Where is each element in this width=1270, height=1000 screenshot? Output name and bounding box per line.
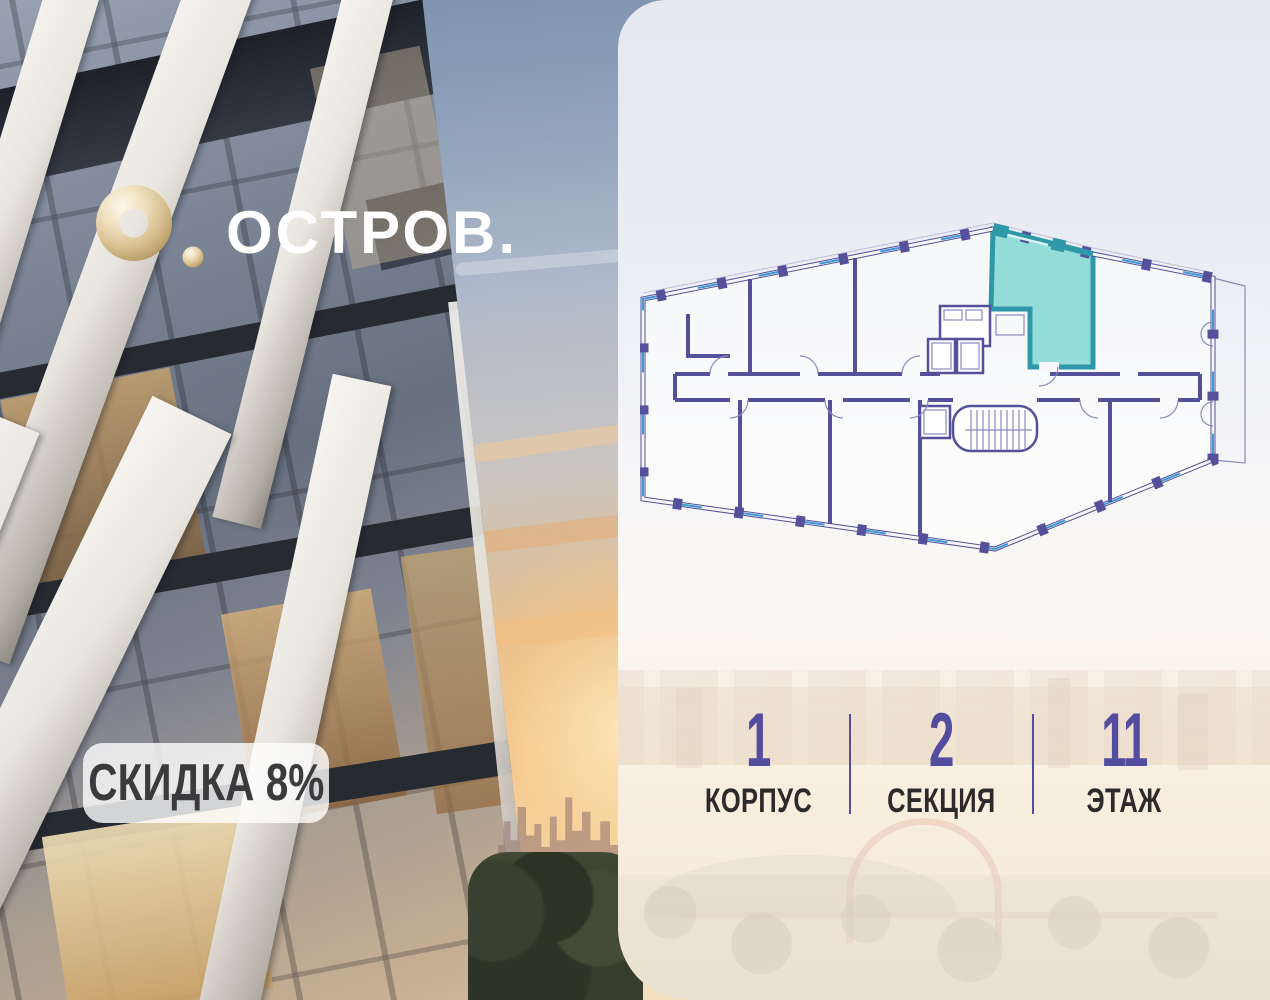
discount-badge-label: СКИДКА 8% <box>88 753 324 813</box>
section-number: 2 <box>929 710 953 772</box>
brand-wordmark: ОСТРОВ. <box>226 198 518 267</box>
discount-badge: СКИДКА 8% <box>83 743 329 823</box>
trees-silhouette <box>468 852 643 1000</box>
donut-logo-icon <box>92 175 212 275</box>
info-column-section: 2 СЕКЦИЯ <box>850 710 1033 818</box>
floor-plan <box>640 222 1252 556</box>
apartment-info-card: 1 КОРПУС 2 СЕКЦИЯ 11 ЭТАЖ <box>618 0 1270 1000</box>
building-label: КОРПУС <box>705 784 812 818</box>
promo-card: ОСТРОВ. СКИДКА 8% <box>0 0 1270 1000</box>
building-number: 1 <box>746 710 770 772</box>
floor-label: ЭТАЖ <box>1087 784 1162 818</box>
unit-location-info: 1 КОРПУС 2 СЕКЦИЯ 11 ЭТАЖ <box>667 710 1219 818</box>
section-label: СЕКЦИЯ <box>887 784 996 818</box>
info-column-floor: 11 ЭТАЖ <box>1033 710 1216 818</box>
floor-number: 11 <box>1102 710 1148 772</box>
info-column-building: 1 КОРПУС <box>667 710 850 818</box>
